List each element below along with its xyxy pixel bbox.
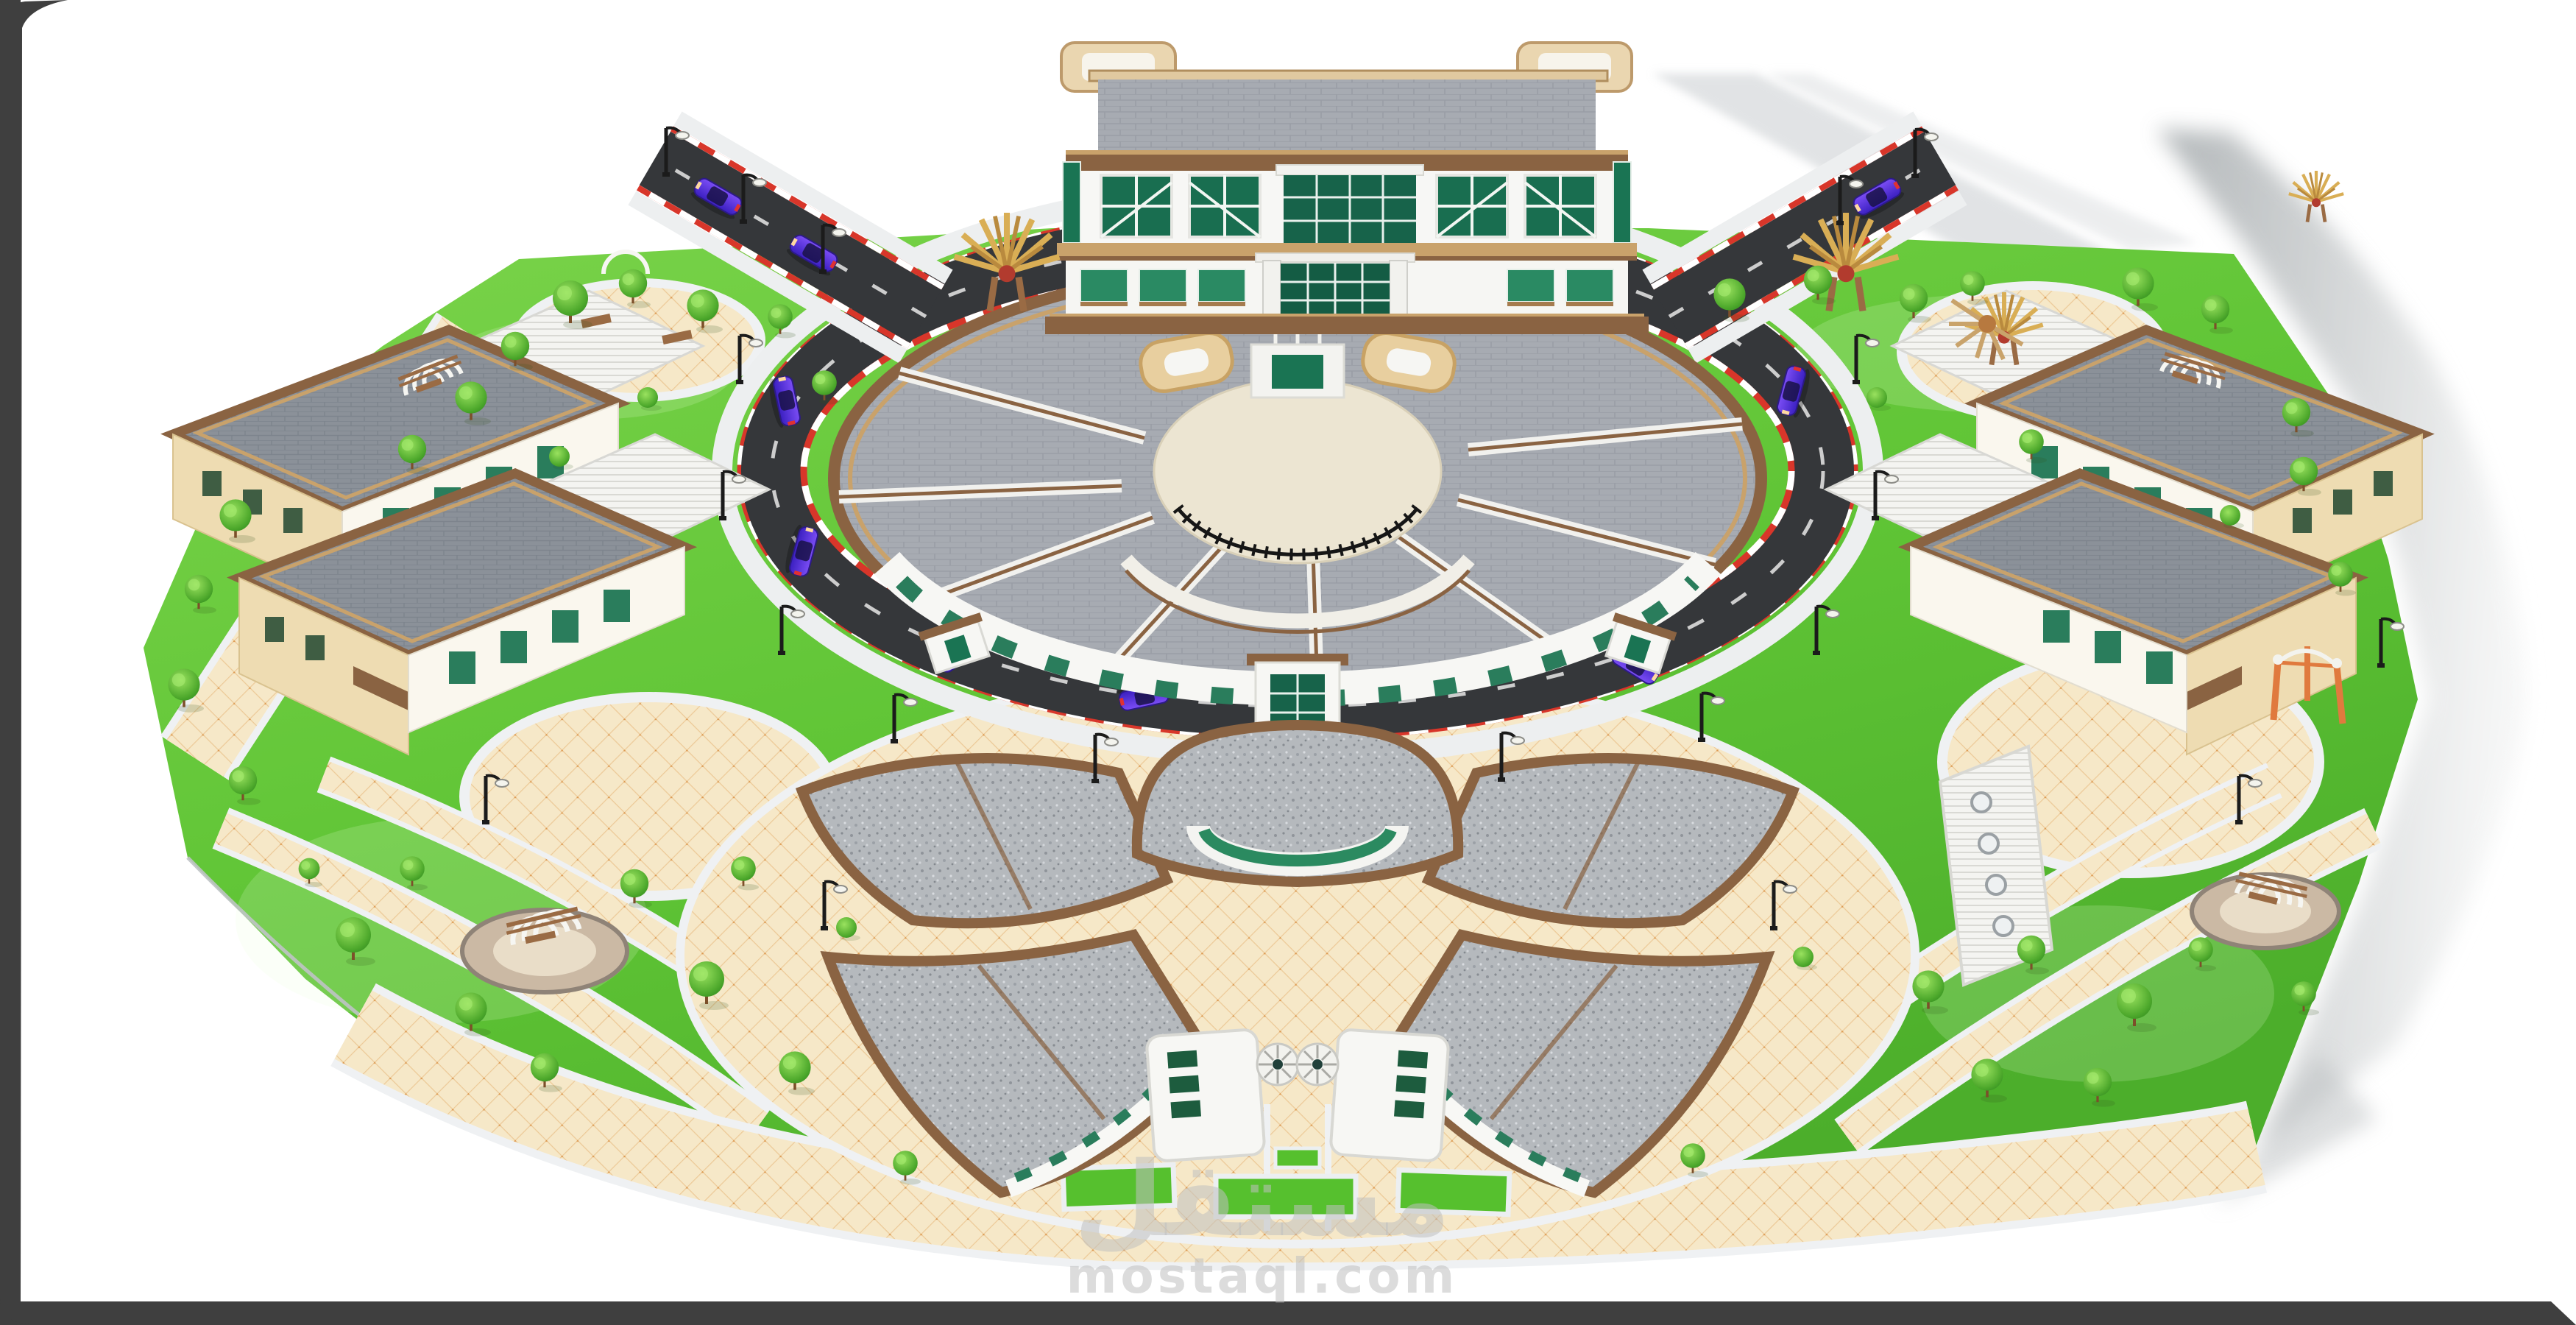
watermark-domain-text: mostaql.com <box>1066 1248 1459 1304</box>
main-administration-building <box>1045 43 1649 334</box>
rendered-image: مستقل mostaql.com <box>0 0 2576 1325</box>
watermark: مستقل mostaql.com <box>1066 1140 1459 1304</box>
watermark-arabic-logo: مستقل <box>1074 1140 1451 1260</box>
